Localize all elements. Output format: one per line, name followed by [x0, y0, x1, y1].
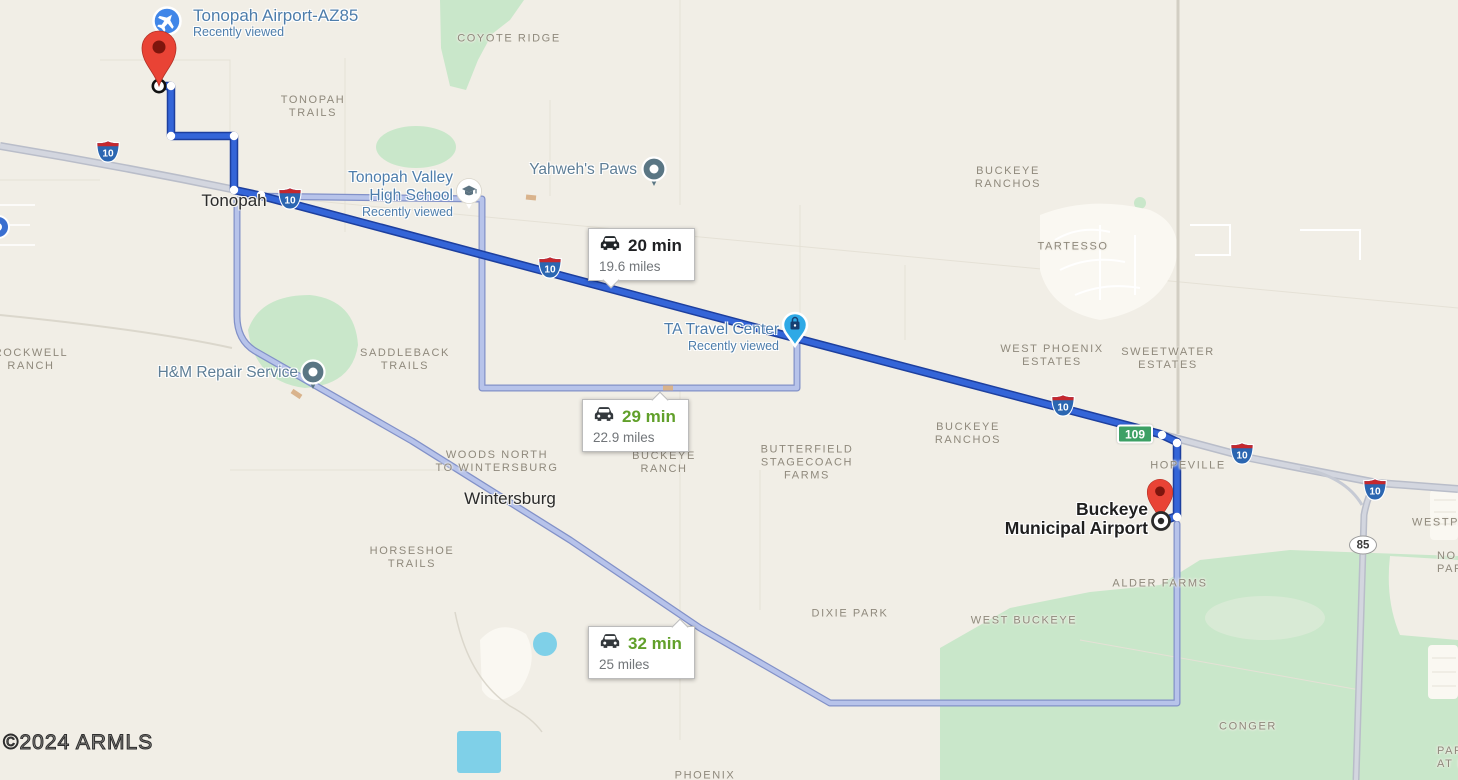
area-label-west-phoenix-estates: WEST PHOENIXESTATES — [1000, 343, 1103, 369]
interstate-10-shield-icon: 10 — [95, 140, 122, 169]
route-option-20min[interactable]: 20 min 19.6 miles — [588, 228, 695, 281]
route-distance: 22.9 miles — [593, 430, 676, 445]
area-label-dixie-park: DIXIE PARK — [812, 608, 889, 621]
area-label-rockwell-ranch: ROCKWELLRANCH — [0, 347, 68, 373]
ta-travel-center-subtitle: Recently viewed — [664, 339, 779, 353]
interstate-10-shield-icon: 10 — [277, 187, 304, 216]
area-label-coyote-ridge: COYOTE RIDGE — [457, 33, 561, 46]
area-label-buckeye-ranchos-south: BUCKEYERANCHOS — [935, 421, 1001, 447]
svg-text:10: 10 — [1057, 403, 1069, 414]
airplane-icon[interactable] — [154, 8, 181, 35]
start-red-pin-icon[interactable] — [142, 31, 176, 86]
area-label-conger: CONGER — [1219, 721, 1277, 734]
route-option-32min[interactable]: 32 min 25 miles — [588, 626, 695, 679]
school-graduation-cap-icon[interactable] — [457, 179, 482, 210]
start-poi-subtitle: Recently viewed — [193, 25, 358, 39]
yahwehs-paws-dot-pin-icon[interactable] — [643, 158, 666, 187]
interstate-10-shield-icon: 10 — [1229, 442, 1256, 471]
route-duration: 29 min — [622, 407, 676, 427]
area-label-west-buckeye: WEST BUCKEYE — [971, 615, 1077, 628]
yahwehs-paws-label[interactable]: Yahweh's Paws — [529, 161, 637, 179]
state-route-85-shield-icon: 85 — [1349, 536, 1377, 555]
area-label-tonopah-trails: TONOPAHTRAILS — [281, 94, 346, 120]
tonopah-valley-hs-subtitle: Recently viewed — [348, 205, 453, 219]
area-label-sweetwater-estates: SWEETWATERESTATES — [1121, 346, 1215, 372]
start-poi-title[interactable]: Tonopah Airport-AZ85 — [193, 7, 358, 25]
svg-text:10: 10 — [1236, 451, 1248, 462]
area-label-buckeye-ranch: BUCKEYERANCH — [632, 450, 696, 476]
area-label-tartesso: TARTESSO — [1037, 241, 1108, 254]
state-route-109-shield-icon: 109 — [1117, 425, 1153, 444]
interstate-10-shield-icon: 10 — [537, 256, 564, 285]
tonopah-valley-hs-label[interactable]: Tonopah Valley High School Recently view… — [348, 169, 453, 219]
car-icon — [593, 406, 615, 428]
area-label-woods-north: WOODS NORTHTO WINTERSBURG — [435, 449, 558, 475]
area-label-buckeye-ranchos-north: BUCKEYERANCHOS — [975, 165, 1041, 191]
area-label-butterfield: BUTTERFIELDSTAGECOACHFARMS — [761, 444, 854, 483]
area-label-alder-farms: ALDER FARMS — [1112, 578, 1207, 591]
area-label-hopeville: HOPEVILLE — [1150, 460, 1226, 473]
start-poi-label[interactable]: Tonopah Airport-AZ85 Recently viewed — [193, 7, 358, 39]
interstate-10-shield-icon: 10 — [1050, 394, 1077, 423]
area-label-saddleback-trails: SADDLEBACKTRAILS — [360, 347, 450, 373]
area-label-westpark-edge: WESTPA — [1412, 517, 1458, 530]
area-label-phoenix: PHOENIX — [675, 770, 736, 780]
town-label-wintersburg: Wintersburg — [464, 489, 556, 509]
park-areas — [248, 0, 1458, 780]
area-label-horseshoe-trails: HORSESHOETRAILS — [370, 545, 455, 571]
car-icon — [599, 235, 621, 257]
interstate-10-shield-icon: 10 — [1362, 478, 1389, 507]
svg-text:10: 10 — [102, 149, 114, 160]
hm-repair-label[interactable]: H&M Repair Service — [158, 364, 298, 382]
destination-target-circle-icon — [1153, 513, 1170, 530]
map-base-layer — [0, 0, 1458, 780]
town-label-tonopah: Tonopah — [201, 191, 266, 211]
svg-text:10: 10 — [284, 196, 296, 207]
area-label-north-park-edge: NOPAR — [1437, 550, 1458, 576]
map-attribution: ©2024 ARMLS — [3, 731, 153, 755]
ta-travel-center-label[interactable]: TA Travel Center Recently viewed — [664, 321, 779, 353]
route-option-29min[interactable]: 29 min 22.9 miles — [582, 399, 689, 452]
route-distance: 25 miles — [599, 657, 682, 672]
car-icon — [599, 633, 621, 655]
svg-text:10: 10 — [1369, 487, 1381, 498]
svg-text:10: 10 — [544, 265, 556, 276]
destination-label[interactable]: Buckeye Municipal Airport — [1005, 500, 1148, 538]
route-duration: 20 min — [628, 236, 682, 256]
route-duration: 32 min — [628, 634, 682, 654]
map-viewport[interactable]: COYOTE RIDGE TONOPAHTRAILS BUCKEYERANCHO… — [0, 0, 1458, 780]
left-edge-poi-icon[interactable] — [0, 216, 9, 238]
area-label-park-at-edge: PARAT B — [1437, 745, 1458, 771]
